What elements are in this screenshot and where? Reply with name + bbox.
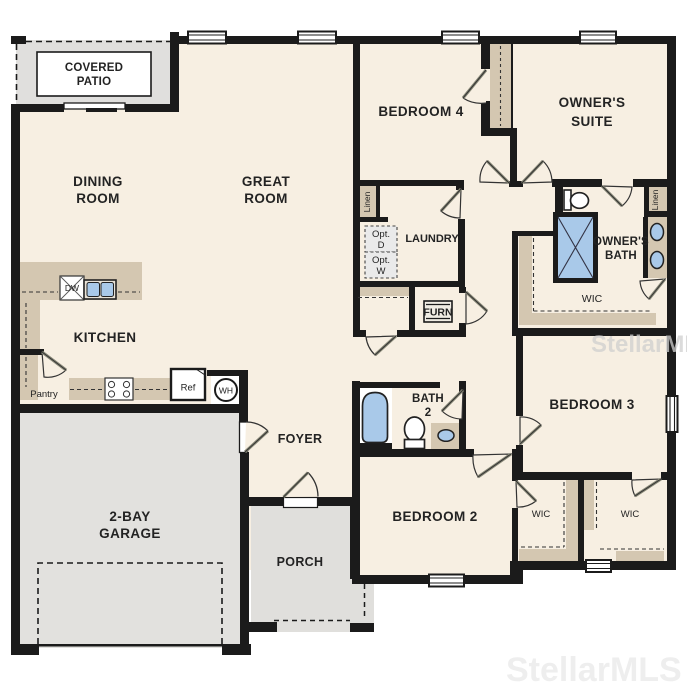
svg-text:WIC: WIC — [582, 293, 603, 305]
svg-text:Opt.: Opt. — [372, 229, 390, 240]
svg-text:Linen: Linen — [650, 189, 660, 210]
svg-text:2: 2 — [425, 407, 432, 419]
svg-text:GARAGE: GARAGE — [99, 526, 161, 541]
svg-text:BATH: BATH — [605, 250, 637, 262]
svg-text:DW: DW — [65, 283, 79, 293]
svg-text:GREAT: GREAT — [242, 174, 291, 189]
svg-text:PATIO: PATIO — [77, 76, 111, 88]
svg-text:Linen: Linen — [362, 191, 372, 212]
svg-text:COVERED: COVERED — [65, 62, 123, 74]
svg-text:BEDROOM 4: BEDROOM 4 — [378, 104, 463, 119]
svg-text:FURN: FURN — [423, 307, 452, 319]
svg-text:2-BAY: 2-BAY — [109, 509, 150, 524]
svg-text:OWNER'S: OWNER'S — [593, 236, 649, 248]
svg-text:DINING: DINING — [73, 174, 123, 189]
svg-text:WIC: WIC — [621, 509, 640, 520]
svg-text:W: W — [377, 266, 386, 277]
svg-text:BATH: BATH — [412, 393, 444, 405]
svg-text:BEDROOM 3: BEDROOM 3 — [549, 397, 634, 412]
svg-text:OWNER'S: OWNER'S — [559, 95, 626, 110]
svg-text:KITCHEN: KITCHEN — [74, 330, 137, 345]
svg-text:BEDROOM 2: BEDROOM 2 — [392, 509, 477, 524]
svg-text:LAUNDRY: LAUNDRY — [405, 233, 459, 245]
svg-text:D: D — [378, 240, 385, 251]
svg-text:SUITE: SUITE — [571, 114, 613, 129]
svg-text:Ref: Ref — [181, 383, 196, 394]
svg-text:Pantry: Pantry — [30, 389, 58, 400]
svg-text:ROOM: ROOM — [76, 191, 120, 206]
svg-text:StellarMLS: StellarMLS — [506, 651, 682, 687]
svg-text:ROOM: ROOM — [244, 191, 288, 206]
svg-text:WIC: WIC — [532, 509, 551, 520]
svg-text:FOYER: FOYER — [278, 432, 323, 446]
svg-text:Opt.: Opt. — [372, 255, 390, 266]
svg-text:WH: WH — [219, 386, 233, 396]
svg-text:PORCH: PORCH — [277, 555, 324, 569]
svg-text:StellarMLS: StellarMLS — [591, 331, 687, 358]
